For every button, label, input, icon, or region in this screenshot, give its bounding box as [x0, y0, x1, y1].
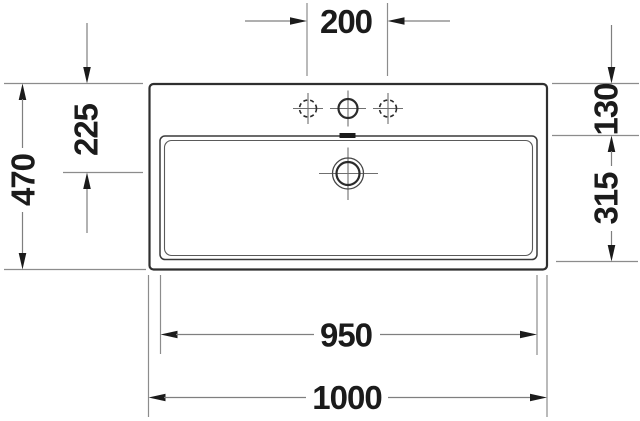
arrow-left-icon: [161, 331, 178, 339]
arrow-down-icon: [83, 67, 91, 84]
arrow-up-icon: [19, 84, 27, 101]
dimension-label-315: 315: [588, 172, 625, 225]
dimension-faucet-hole-spacing: 200: [245, 3, 450, 76]
dimension-front-edge-to-drain: 225: [63, 23, 143, 233]
dimension-rim-to-basin-edge: 130: [552, 25, 639, 136]
dimension-label-200: 200: [320, 3, 372, 40]
arrow-up-icon: [83, 173, 91, 190]
dimension-label-225: 225: [68, 103, 105, 156]
dimension-label-1000: 1000: [312, 379, 381, 416]
dimension-label-950: 950: [320, 317, 372, 354]
technical-drawing-page: 200 225 470 130: [0, 0, 640, 421]
washbasin-dimension-drawing: 200 225 470 130: [0, 0, 640, 421]
arrow-left-icon: [388, 17, 405, 25]
dimension-basin-inner-width: 950: [161, 275, 538, 355]
overflow-slot: [340, 133, 356, 138]
arrow-down-icon: [608, 67, 616, 84]
dimension-label-130: 130: [588, 83, 625, 135]
arrow-left-icon: [149, 394, 166, 402]
dimension-label-470: 470: [5, 154, 42, 206]
arrow-right-icon: [520, 331, 537, 339]
arrow-down-icon: [19, 253, 27, 270]
arrow-down-icon: [608, 245, 616, 262]
dimension-basin-depth: 315: [556, 136, 638, 262]
arrow-right-icon: [290, 17, 307, 25]
arrow-up-icon: [608, 136, 616, 153]
arrow-right-icon: [530, 394, 547, 402]
